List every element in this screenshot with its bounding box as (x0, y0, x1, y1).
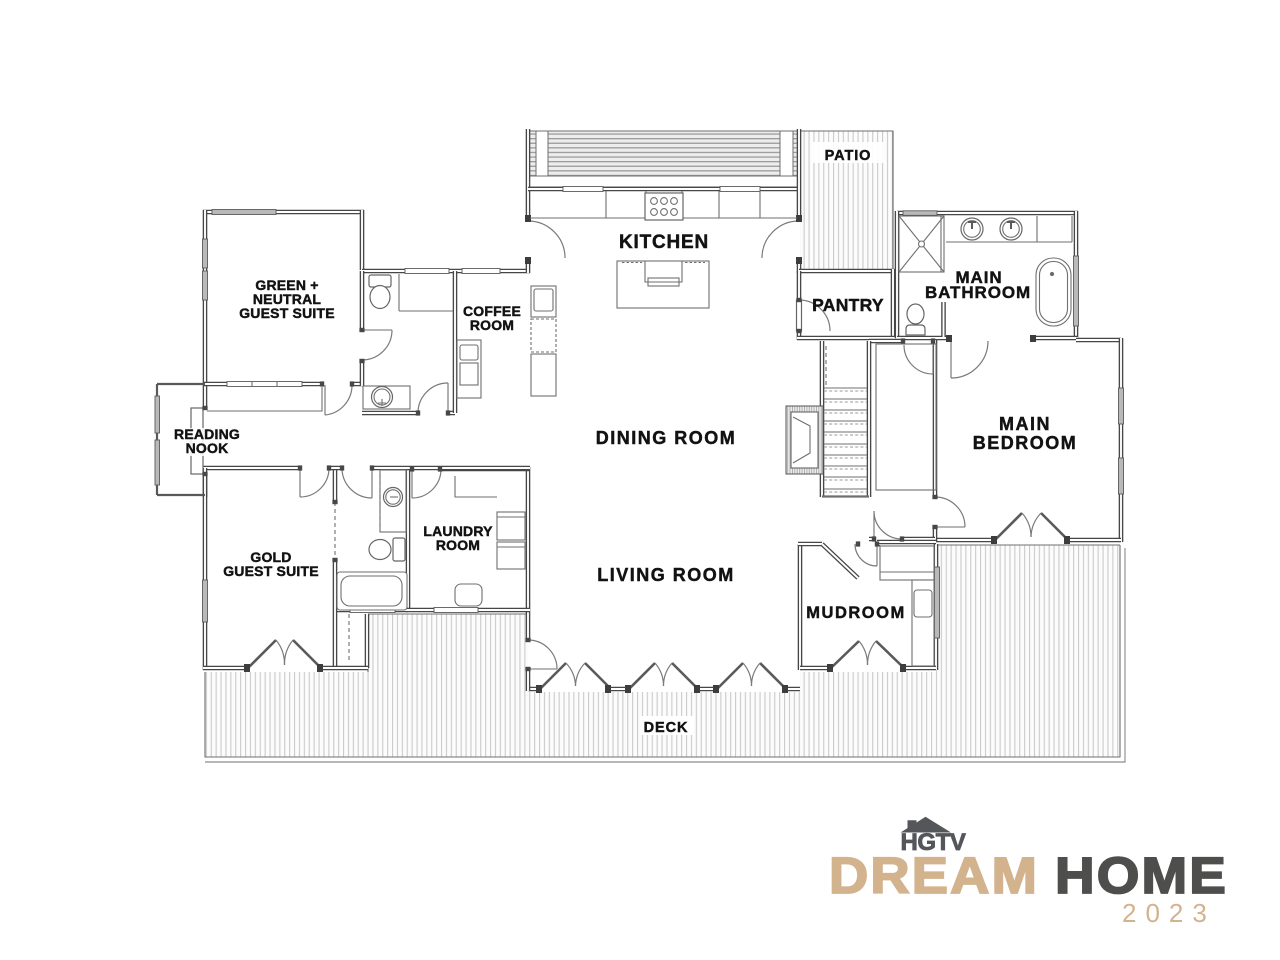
svg-text:DECK: DECK (644, 720, 689, 736)
svg-text:DREAM: DREAM (829, 847, 1039, 904)
svg-text:GUEST SUITE: GUEST SUITE (239, 305, 335, 321)
svg-text:ROOM: ROOM (436, 537, 480, 553)
svg-text:MUDROOM: MUDROOM (806, 604, 905, 622)
svg-text:PATIO: PATIO (825, 148, 872, 164)
svg-text:BATHROOM: BATHROOM (925, 283, 1031, 302)
svg-text:DINING ROOM: DINING ROOM (596, 428, 737, 448)
svg-text:LIVING ROOM: LIVING ROOM (597, 565, 735, 585)
svg-text:GUEST SUITE: GUEST SUITE (223, 563, 319, 579)
svg-text:MAIN: MAIN (999, 414, 1051, 434)
svg-text:HOME: HOME (1055, 847, 1228, 904)
svg-text:ROOM: ROOM (470, 317, 514, 333)
svg-text:PANTRY: PANTRY (812, 295, 884, 315)
svg-text:KITCHEN: KITCHEN (619, 232, 709, 253)
svg-text:2023: 2023 (1122, 898, 1216, 928)
svg-text:BEDROOM: BEDROOM (973, 433, 1078, 453)
svg-text:NOOK: NOOK (186, 440, 229, 456)
